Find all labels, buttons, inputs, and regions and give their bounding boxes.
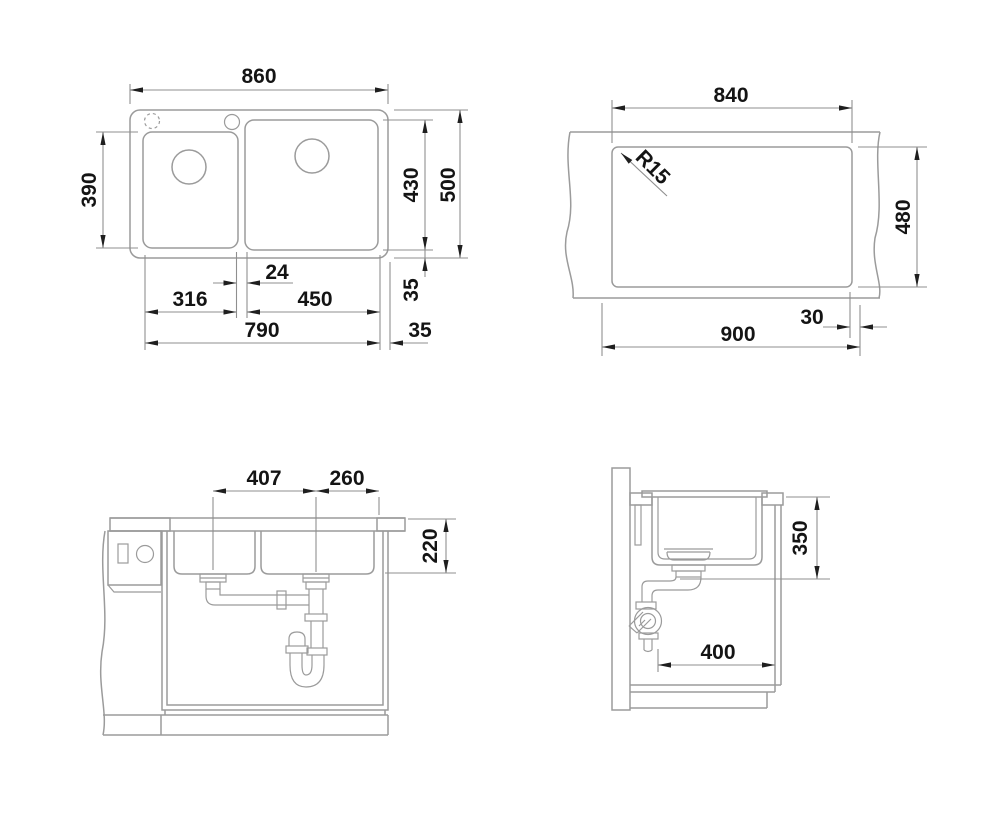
dim-840: 840 <box>713 84 748 107</box>
extension-lines <box>96 84 468 350</box>
trap-cap <box>289 632 305 646</box>
drain-nut <box>676 571 701 577</box>
dim-400: 400 <box>700 641 735 664</box>
plan-view: 860 390 430 500 35 24 316 450 790 35 <box>78 65 468 350</box>
drain-plumbing <box>200 574 329 687</box>
right-drain-nut <box>306 582 326 589</box>
technical-drawing-sheet: 860 390 430 500 35 24 316 450 790 35 840… <box>0 0 995 821</box>
dimension-lines <box>602 108 917 347</box>
wall-section <box>612 468 630 710</box>
sink-rim-section <box>642 491 767 497</box>
bowl-section-outer <box>652 497 762 565</box>
wall-outlet-stub <box>629 612 651 633</box>
dim-860: 860 <box>241 65 276 88</box>
right-drain-tee <box>309 589 323 614</box>
dim-900: 900 <box>720 323 755 346</box>
dim-450: 450 <box>297 288 332 311</box>
socket-outlet <box>137 546 154 563</box>
trap-loop-outer <box>635 608 662 635</box>
dim-35-vertical: 35 <box>400 278 423 302</box>
dim-430: 430 <box>400 167 423 202</box>
cabinet-outline <box>162 531 388 715</box>
strainer-basket <box>664 549 713 560</box>
left-drain <box>172 150 206 184</box>
bowl-section-inner <box>658 497 756 559</box>
side-section-view: 350 400 <box>612 468 830 710</box>
dim-260: 260 <box>329 467 364 490</box>
drawing-svg: 860 390 430 500 35 24 316 450 790 35 840… <box>0 0 995 821</box>
worktop-right-section <box>377 518 405 531</box>
worktop-left-section <box>110 518 170 531</box>
trap-loop-inner <box>641 614 656 629</box>
socket-switch <box>118 544 128 563</box>
dim-316: 316 <box>172 288 207 311</box>
drain-flange <box>672 565 705 571</box>
tee-nut <box>305 614 327 621</box>
bowls-section <box>174 531 374 574</box>
worktop-edges <box>570 132 880 298</box>
dimension-lines <box>213 491 446 573</box>
dim-350: 350 <box>789 520 812 555</box>
tap-hole <box>225 115 240 130</box>
dim-220: 220 <box>419 528 442 563</box>
dim-500: 500 <box>437 167 460 202</box>
optional-tap-hole <box>145 114 160 129</box>
cabinet-plinth <box>103 715 388 735</box>
dim-35-horizontal: 35 <box>408 319 432 342</box>
pipe-coupling <box>277 591 286 609</box>
u-trap <box>290 653 324 687</box>
right-drain <box>295 139 329 173</box>
trap-down-pipe <box>311 621 323 648</box>
sink-rear-apron <box>635 505 641 545</box>
worktop-left-section <box>630 493 652 505</box>
dimension-lines <box>103 90 460 343</box>
socket-box-depth-edge <box>108 585 161 592</box>
dim-390: 390 <box>78 172 101 207</box>
dim-30: 30 <box>800 306 823 329</box>
dimension-arrows <box>602 105 920 349</box>
wall-break-line <box>101 531 105 735</box>
dim-407: 407 <box>246 467 281 490</box>
trap-nut <box>307 648 327 655</box>
lower-pipe <box>644 639 652 652</box>
cutout-view: 840 R15 480 900 30 <box>565 84 927 356</box>
elbow-to-wall <box>642 577 701 602</box>
front-section-view: 407 260 220 <box>101 467 456 735</box>
dimension-arrows <box>100 87 462 345</box>
dim-r15: R15 <box>631 146 675 190</box>
dim-24: 24 <box>265 261 289 284</box>
trap-cap-nut <box>286 646 308 653</box>
sink-rim-section <box>110 518 405 531</box>
dim-480: 480 <box>892 199 915 234</box>
dim-790: 790 <box>244 319 279 342</box>
left-drain-nut <box>206 582 220 589</box>
worktop-right-section <box>762 493 783 505</box>
